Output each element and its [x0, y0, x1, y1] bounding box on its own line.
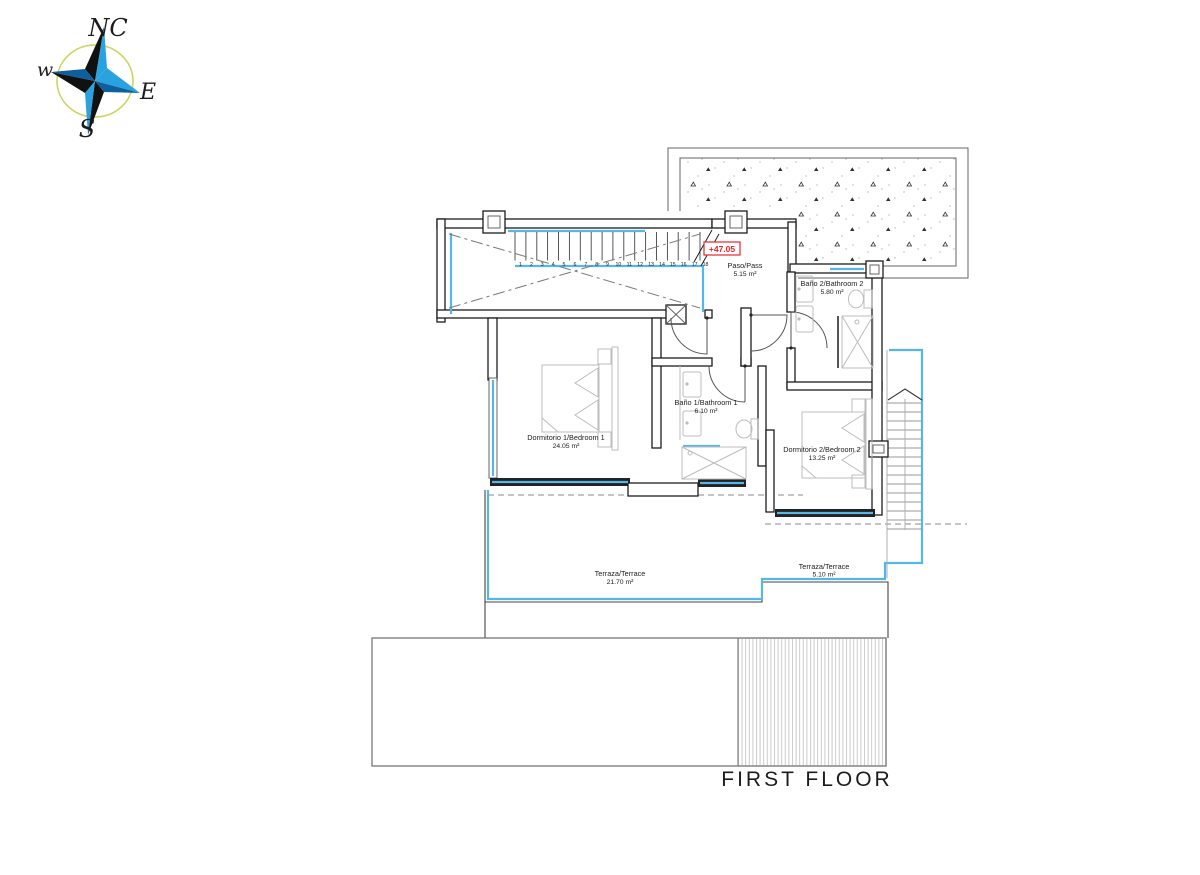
stair-tread-number: 18 [703, 262, 709, 268]
floor-plan-drawing: NC w E S [0, 0, 1200, 875]
room-area-bath2: 5.80 m² [820, 289, 844, 296]
floor-plan-sheet: NC w E S [0, 0, 1200, 875]
room-label-terrace1: Terraza/Terrace [595, 569, 646, 578]
sliding-glass-doors [490, 478, 875, 517]
exterior-stair [887, 350, 922, 578]
pergola-hatch [738, 638, 886, 766]
compass-south-label: S [79, 115, 95, 143]
room-label-bed2: Dormitorio 2/Bedroom 2 [783, 445, 860, 454]
room-label-bed1: Dormitorio 1/Bedroom 1 [527, 433, 604, 442]
compass-west-label: w [37, 59, 53, 81]
compass-east-label: E [139, 80, 156, 105]
lower-structure [372, 638, 886, 766]
stair-tread-number: 1 [519, 262, 522, 268]
stair-tread-number: 15 [670, 262, 676, 268]
room-area-terrace1: 21.70 m² [607, 579, 635, 586]
stair-tread-number: 2 [530, 262, 533, 268]
room-label-bath2: Baño 2/Bathroom 2 [801, 279, 864, 288]
stair-tread-number: 12 [637, 262, 643, 268]
stair-tread-number: 16 [681, 262, 687, 268]
room-label-paso: Paso/Pass [728, 261, 763, 270]
compass-rose: NC w E S [37, 14, 156, 143]
level-marker: +47.05 [704, 242, 740, 255]
room-area-bath1: 6.10 m² [694, 408, 718, 415]
bed-2 [802, 399, 872, 489]
room-area-bed2: 13.25 m² [809, 455, 837, 462]
room-area-bed1: 24.05 m² [553, 443, 581, 450]
room-label-bath1: Baño 1/Bathroom 1 [675, 398, 738, 407]
room-area-terrace2: 5.10 m² [812, 572, 836, 579]
stair-tread-number: 14 [659, 262, 665, 268]
stair-tread-number: 6 [573, 262, 576, 268]
stair-direction-arrow [888, 389, 922, 400]
stair-tread-number: 17 [692, 262, 698, 268]
exterior-stair-treads [887, 403, 922, 529]
stair-tread-number: 3 [541, 262, 544, 268]
terrace-outline [485, 350, 922, 638]
stair-tread-number: 9 [606, 262, 609, 268]
level-marker-value: +47.05 [709, 244, 736, 254]
compass-north-label: NC [87, 14, 127, 42]
stair-tread-number: 8 [595, 262, 598, 268]
compass-star [51, 27, 140, 135]
room-area-paso: 5.15 m² [733, 271, 757, 278]
stair-tread-number: 13 [648, 262, 654, 268]
bathroom-1-fixtures [680, 366, 758, 479]
stair-tread-number: 10 [616, 262, 622, 268]
drawing-title: FIRST FLOOR [721, 768, 892, 791]
room-label-terrace2: Terraza/Terrace [799, 562, 850, 571]
stair-tread-number: 11 [627, 262, 632, 268]
